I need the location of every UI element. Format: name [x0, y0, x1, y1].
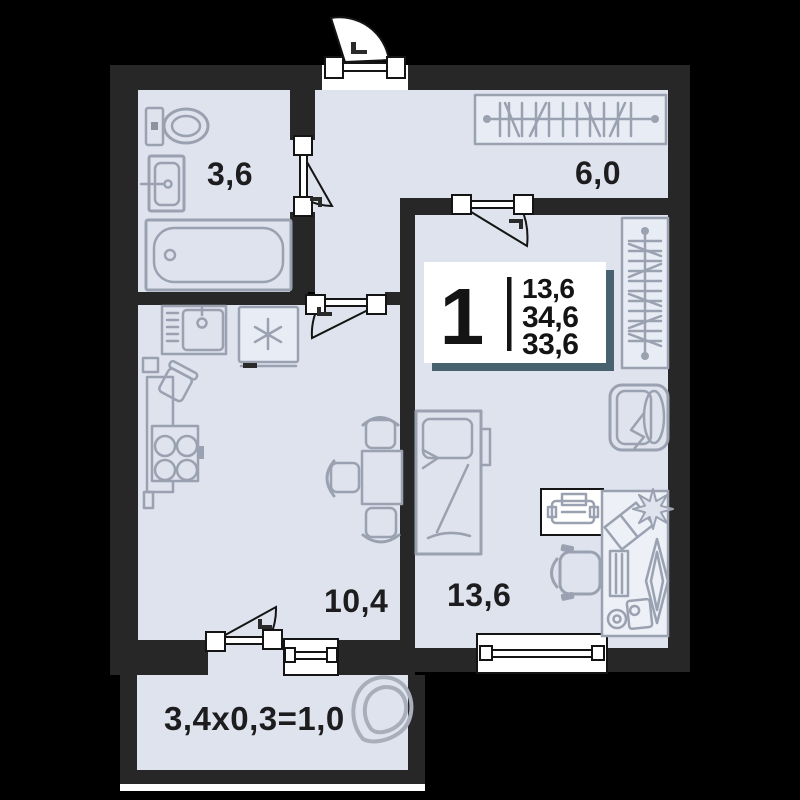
- hallway-area-label: 6,0: [575, 155, 621, 191]
- balcony-area-label: 3,4x0,3=1,0: [164, 700, 345, 737]
- area-value-3: 33,6: [522, 328, 578, 361]
- dining-table-icon: [362, 451, 402, 504]
- floor-plan: 3,6 6,0 10,4 13,6 3,4x0,3=1,0 1 13,6 34,…: [0, 0, 800, 800]
- kitchen-area-label: 10,4: [324, 583, 388, 619]
- floor-plan-canvas: 3,6 6,0 10,4 13,6 3,4x0,3=1,0 1 13,6 34,…: [0, 0, 800, 800]
- plant-icon: [633, 489, 673, 529]
- entrance-door-icon: [322, 17, 408, 90]
- fridge-icon: [239, 307, 298, 368]
- rooms-count: 1: [440, 272, 485, 361]
- area-value-1: 13,6: [522, 273, 575, 304]
- balcony-glazing-strip: [120, 784, 425, 791]
- stove-icon: [152, 426, 204, 481]
- hallway-wardrobe-icon: [475, 95, 666, 144]
- info-card-divider: [507, 277, 512, 351]
- dresser-icon: [602, 489, 673, 636]
- bathroom-area-label: 3,6: [207, 156, 253, 192]
- info-card: 1 13,6 34,6 33,6: [424, 262, 614, 371]
- bedroom-window-icon: [477, 634, 607, 673]
- balcony-window-icon: [284, 639, 338, 675]
- desk-icon: [541, 489, 603, 535]
- bedroom-wardrobe-icon: [622, 218, 668, 368]
- bedroom-area-label: 13,6: [447, 577, 511, 613]
